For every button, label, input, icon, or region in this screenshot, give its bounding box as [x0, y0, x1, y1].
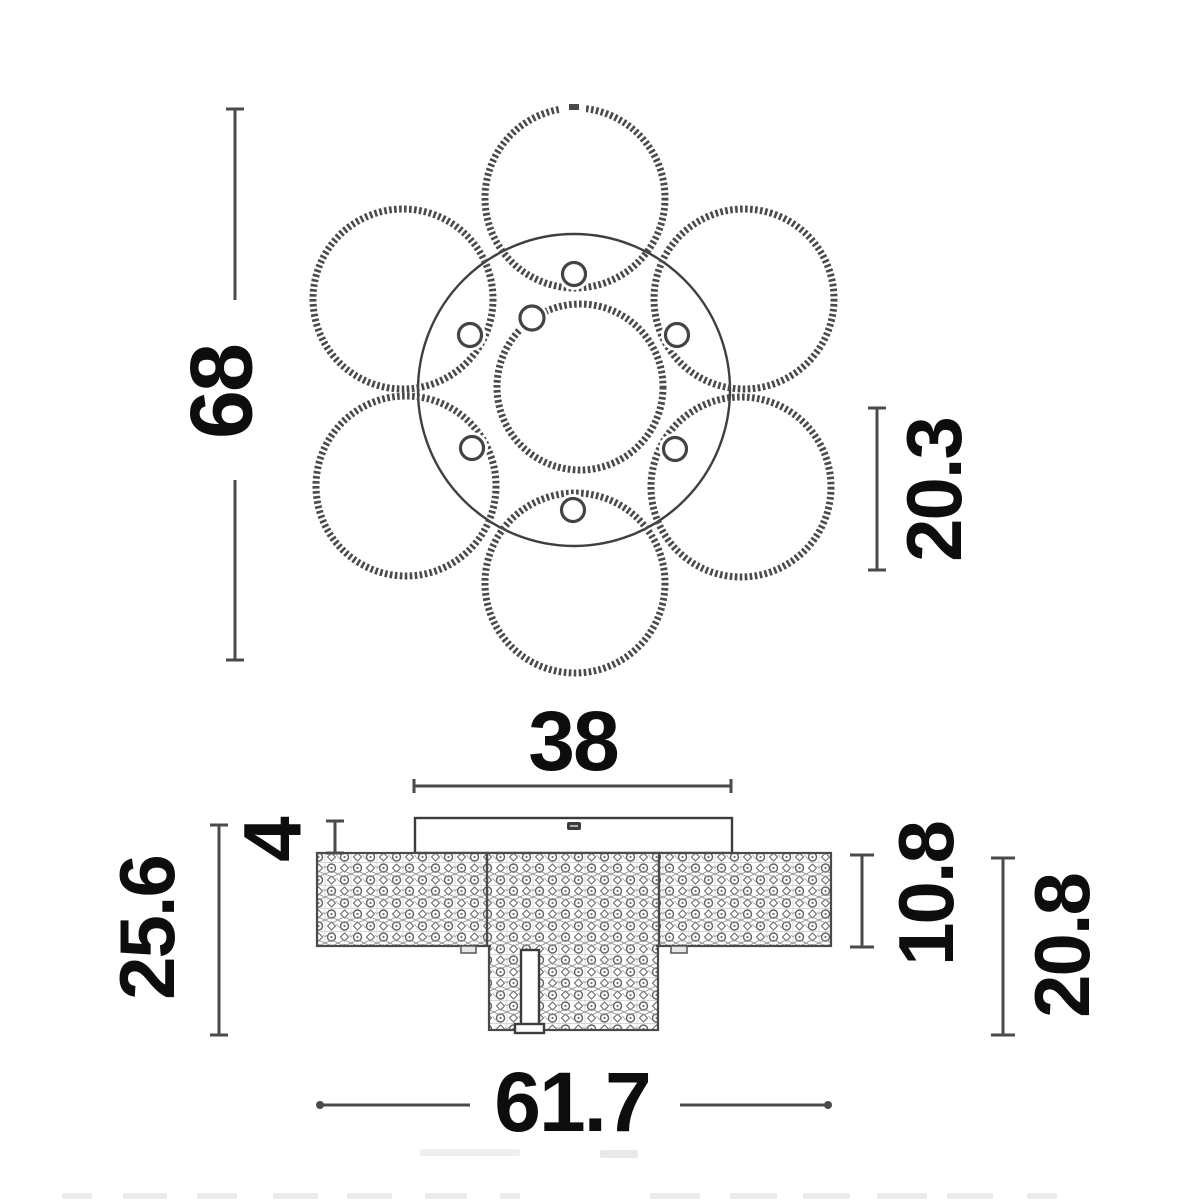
dim-ring-offset-label: 20.3 [890, 418, 978, 562]
thumbnail-fragment[interactable] [650, 1193, 700, 1199]
connector-bead [664, 438, 687, 461]
thumbnail-fragment[interactable] [197, 1193, 237, 1199]
thumbnail-fragment[interactable] [730, 1193, 777, 1199]
dim-band-height-label: 10.8 [882, 822, 970, 966]
ring-upper-left [313, 209, 493, 389]
crystal-band [317, 853, 831, 946]
dim-end-dot [316, 1101, 324, 1109]
ring-lower-left [316, 396, 496, 576]
thumbnail-fragment[interactable] [803, 1193, 850, 1199]
thumbnail-fragment[interactable] [62, 1193, 92, 1199]
crystal-lower-tier [489, 946, 658, 1030]
band-tab-right [671, 946, 687, 953]
dim-canopy-width-label: 38 [528, 694, 618, 788]
bead-gaps [454, 258, 693, 526]
top-view: 68 20.3 [172, 100, 979, 673]
side-view: 38 4 25.6 [103, 694, 1106, 1149]
dimension-drawing: 68 20.3 38 [0, 0, 1200, 1200]
diagram-page: 68 20.3 38 [0, 0, 1200, 1200]
ring-top-hanger-tick [569, 104, 579, 110]
dim-end-dot [824, 1101, 832, 1109]
dim-body-height-label: 20.8 [1018, 874, 1106, 1018]
ring-lower-right [651, 397, 831, 577]
tier-junction [491, 943, 656, 950]
thumbnail-fragment[interactable] [347, 1193, 392, 1199]
thumbnail-fragment[interactable] [947, 1193, 993, 1199]
dim-overall-width-label: 61.7 [494, 1055, 650, 1149]
dim-canopy-height-label: 4 [228, 816, 319, 862]
thumbnail-fragment[interactable] [500, 1193, 520, 1199]
thumbnail-strip [62, 1149, 1057, 1199]
thumbnail-fragment[interactable] [273, 1193, 318, 1199]
dim-band-height [850, 855, 874, 947]
stem-foot [515, 1024, 544, 1033]
center-stem [521, 950, 539, 1025]
connector-bead [563, 263, 586, 286]
connector-bead [562, 499, 585, 522]
connector-bead [520, 306, 544, 330]
dim-overall-height-label: 68 [172, 345, 271, 439]
dim-canopy-height [326, 821, 344, 853]
thumbnail-fragment[interactable] [123, 1193, 167, 1199]
dim-ring-offset [868, 408, 886, 570]
thumbnail-fragment[interactable] [877, 1193, 927, 1199]
band-tab-left [461, 946, 476, 953]
thumbnail-fragment[interactable] [600, 1150, 638, 1158]
thumbnail-fragment[interactable] [425, 1193, 467, 1199]
dim-overall-height-side-label: 25.6 [103, 856, 191, 1000]
thumbnail-fragment[interactable] [420, 1149, 520, 1156]
connector-bead [666, 324, 689, 347]
connector-bead [461, 437, 484, 460]
dim-overall-height-side-view [210, 825, 228, 1035]
ring-upper-right [654, 209, 834, 389]
thumbnail-fragment[interactable] [1027, 1193, 1057, 1199]
connector-bead [459, 324, 482, 347]
dim-body-height [991, 858, 1015, 1035]
